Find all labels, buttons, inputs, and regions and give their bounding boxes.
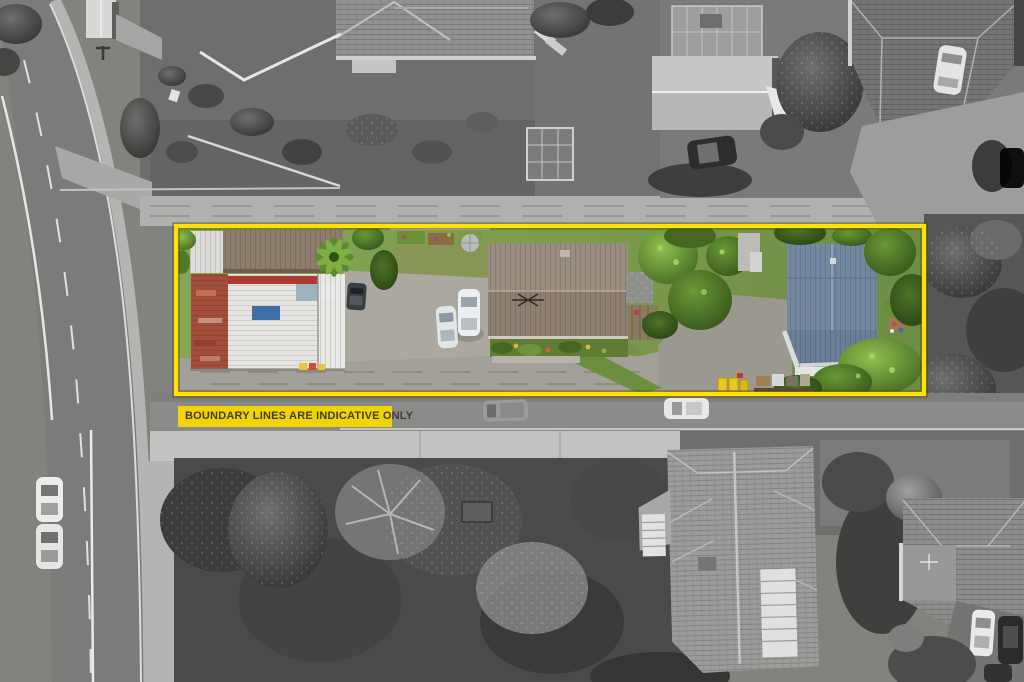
neighbour-topright — [648, 0, 1024, 226]
garden-shed-bottom — [462, 502, 492, 522]
parked-car-white-br — [969, 609, 995, 656]
boundary-disclaimer-label: BOUNDARY LINES ARE INDICATIVE ONLY — [178, 406, 392, 427]
trees-bottom — [160, 458, 730, 682]
aviary-cage — [527, 128, 573, 180]
neighbour-house-bottomright — [888, 498, 1024, 682]
stored-items — [754, 374, 814, 392]
palm-tree — [314, 237, 354, 277]
aerial-photo: BOUNDARY LINES ARE INDICATIVE ONLY — [0, 0, 1024, 682]
aerial-photo-canvas — [0, 0, 1024, 682]
blue-roof-patch — [252, 306, 280, 320]
property-lot — [172, 221, 934, 401]
